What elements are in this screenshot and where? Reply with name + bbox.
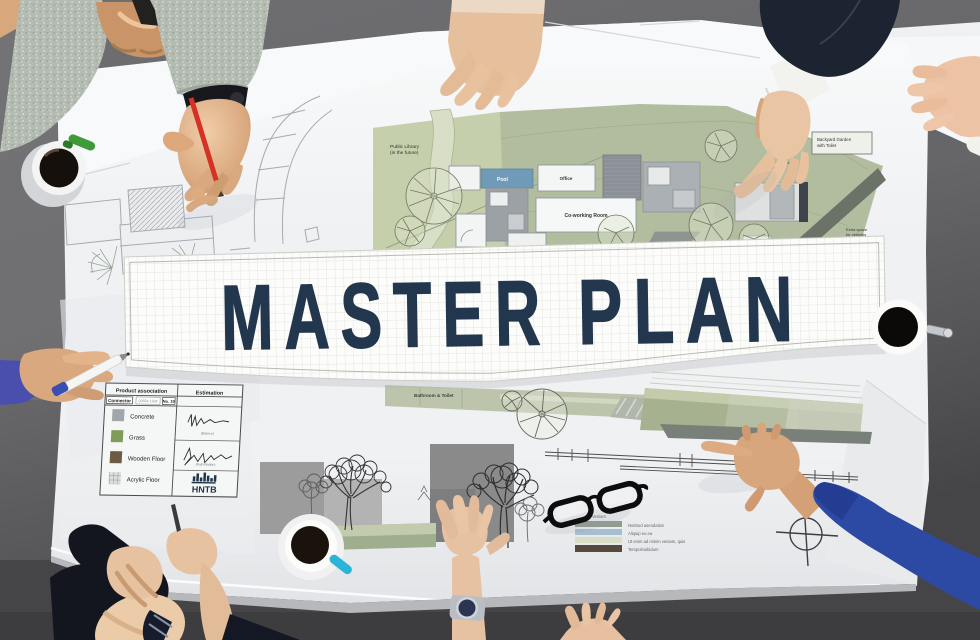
svg-text:Pool: Pool	[497, 177, 508, 183]
svg-text:Backyard Garden: Backyard Garden	[817, 137, 852, 142]
svg-text:Acrylic Floor: Acrylic Floor	[127, 477, 160, 483]
svg-text:Grass: Grass	[129, 435, 145, 441]
svg-text:PLAN: PLAN	[577, 258, 805, 364]
svg-text:Office: Office	[560, 176, 573, 181]
svg-text:Ut enim ad minim veniam, quis: Ut enim ad minim veniam, quis	[628, 539, 685, 544]
svg-text:MASTER: MASTER	[220, 262, 552, 369]
svg-text:02654-1936: 02654-1936	[138, 399, 157, 403]
svg-text:Connector: Connector	[108, 398, 131, 403]
svg-text:Public Library: Public Library	[390, 144, 420, 150]
svg-text:with Toilet: with Toilet	[817, 143, 837, 148]
svg-text:(Full relation): (Full relation)	[196, 462, 216, 466]
svg-text:Bathroom & Toilet: Bathroom & Toilet	[414, 393, 454, 398]
svg-text:Product association: Product association	[116, 388, 168, 395]
svg-text:No. 19: No. 19	[163, 399, 176, 404]
svg-text:(Rateev): (Rateev)	[201, 431, 214, 435]
svg-text:(in the future): (in the future)	[390, 150, 419, 156]
svg-text:Co-working Room: Co-working Room	[564, 213, 608, 219]
svg-text:Tempolnoibidum: Tempolnoibidum	[628, 547, 659, 552]
svg-text:Wooden Floor: Wooden Floor	[128, 456, 166, 463]
svg-text:Concrete: Concrete	[130, 414, 155, 420]
svg-text:Estimation: Estimation	[196, 390, 224, 396]
svg-text:HNTB: HNTB	[191, 484, 217, 494]
svg-text:Nostrud asendation: Nostrud asendation	[628, 523, 665, 528]
svg-text:Aliquip eu ea: Aliquip eu ea	[628, 531, 653, 536]
